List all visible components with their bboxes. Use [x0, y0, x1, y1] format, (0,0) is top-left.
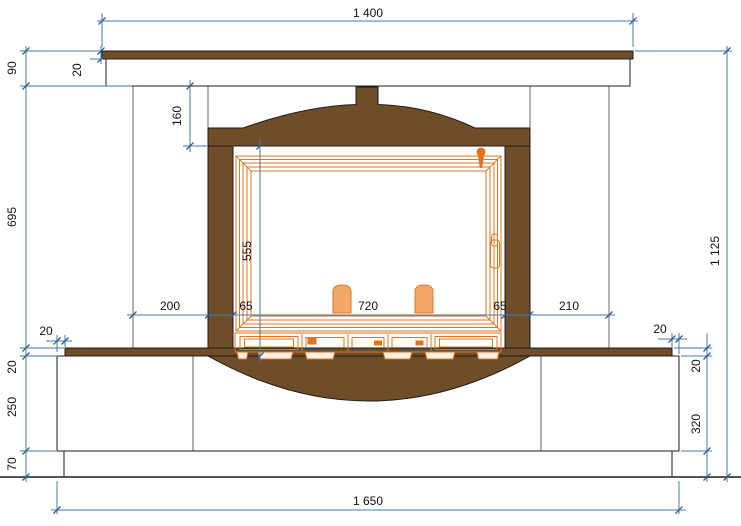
dim-label-body-height: 695	[5, 207, 19, 227]
vent-knob	[374, 341, 382, 346]
dim-label-hearth-thickness-right: 20	[689, 359, 703, 373]
dim-label-right-jamb-width: 65	[493, 299, 507, 313]
fireplace-body	[0, 51, 741, 477]
dim-label-mantel-height: 90	[5, 61, 19, 75]
dim-label-base-total-height-right: 320	[689, 414, 703, 434]
andiron-right-icon	[415, 285, 433, 313]
dim-label-right-column-width: 210	[559, 299, 579, 313]
dim-label-left-jamb-width: 65	[239, 299, 253, 313]
dim-label-door-height: 555	[240, 241, 254, 261]
dim-label-mantel-top-thickness: 20	[70, 63, 84, 77]
fireplace-elevation-drawing: 1 400 90 20 160 695 555 200 65 720 65 21…	[0, 0, 741, 526]
dim-label-opening-width: 720	[358, 299, 378, 313]
vent-knob	[308, 338, 317, 345]
crown-arch	[208, 87, 530, 146]
dim-label-hearth-inset-left: 20	[39, 324, 53, 338]
damper-handle-icon	[477, 148, 486, 169]
dim-label-overall-base-width: 1 650	[353, 494, 383, 508]
mantel-frieze	[106, 59, 630, 86]
dim-label-hearth-inset-right: 20	[653, 322, 667, 336]
dim-label-left-column-width: 200	[160, 299, 180, 313]
firebox-door	[235, 148, 501, 360]
base-strip	[64, 451, 672, 477]
right-jamb	[505, 146, 530, 356]
vent-knob	[416, 341, 424, 346]
dim-label-plinth-height: 250	[5, 397, 19, 417]
door-glass	[251, 171, 486, 316]
drawing-canvas: 1 400 90 20 160 695 555 200 65 720 65 21…	[0, 0, 741, 526]
dim-label-overall-height: 1 125	[708, 236, 722, 266]
andiron-left-icon	[333, 285, 351, 313]
mantel-shelf	[102, 51, 633, 59]
left-jamb	[208, 146, 233, 356]
dim-label-hearth-thickness-left: 20	[5, 360, 19, 374]
dim-label-mantel-width: 1 400	[353, 6, 383, 20]
dim-label-base-band-height: 70	[5, 457, 19, 471]
door-handle	[491, 234, 500, 268]
dim-label-flue-band-height: 160	[170, 106, 184, 126]
